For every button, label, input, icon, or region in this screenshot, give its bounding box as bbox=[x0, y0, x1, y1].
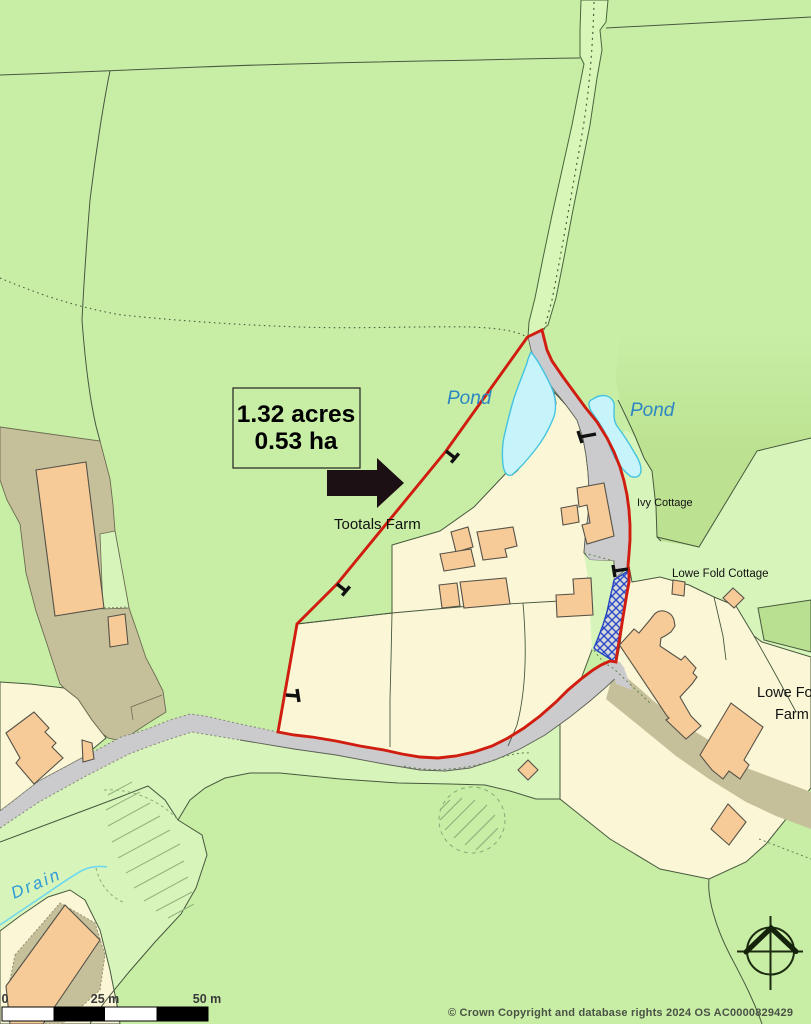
svg-text:Lowe Fold: Lowe Fold bbox=[757, 685, 811, 701]
svg-text:Pond: Pond bbox=[630, 400, 676, 421]
svg-text:0.53 ha: 0.53 ha bbox=[254, 428, 337, 455]
svg-text:Tootals Farm: Tootals Farm bbox=[334, 516, 421, 533]
svg-text:25 m: 25 m bbox=[91, 992, 120, 1006]
svg-text:1.32 acres: 1.32 acres bbox=[237, 401, 356, 428]
svg-text:Ivy Cottage: Ivy Cottage bbox=[637, 497, 693, 509]
svg-text:Lowe Fold Cottage: Lowe Fold Cottage bbox=[672, 568, 769, 580]
svg-text:Pond: Pond bbox=[447, 388, 493, 409]
svg-text:50 m: 50 m bbox=[193, 992, 222, 1006]
svg-text:0: 0 bbox=[2, 992, 9, 1006]
svg-text:Farm: Farm bbox=[775, 707, 809, 723]
svg-text:© Crown Copyright and database: © Crown Copyright and database rights 20… bbox=[448, 1007, 793, 1019]
